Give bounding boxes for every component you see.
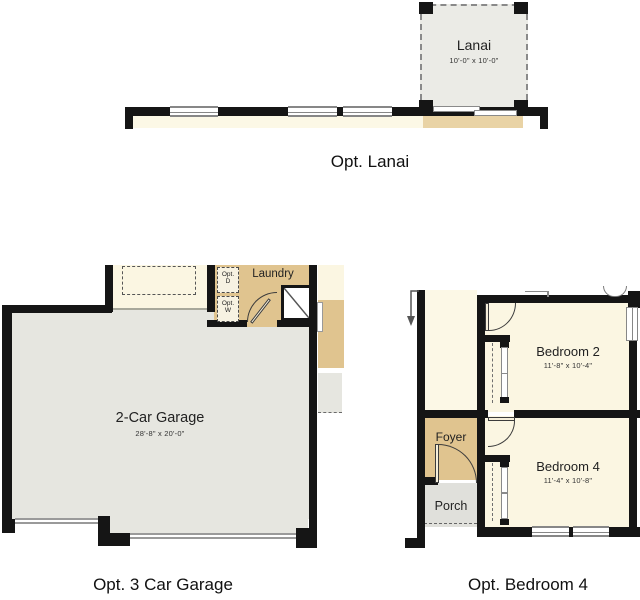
cutoff-hall-strip [318, 265, 344, 300]
window [343, 106, 392, 117]
garage-step-wall-b [98, 533, 130, 546]
closet4-rod-dashed [492, 463, 493, 521]
lanai-room-dims: 10'-0" x 10'-0" [424, 56, 524, 65]
opt-washer-line2: W [225, 307, 231, 314]
rear-wall-left-return [125, 107, 133, 129]
garage-room-dims: 28'-8" x 20'-0" [80, 429, 240, 438]
garage-top-wall [2, 305, 112, 313]
garage-room-label: 2-Car Garage [80, 410, 240, 426]
rear-wall-right-return [540, 107, 548, 129]
garage-bottom-left-stub [2, 519, 15, 533]
closet2-jamb [500, 397, 509, 403]
cutoff-gray-strip [318, 373, 342, 413]
section-title-lanai: Opt. Lanai [250, 152, 490, 172]
window [170, 106, 218, 117]
cutoff-window-mark [525, 291, 549, 295]
garage-left-wall [2, 305, 12, 533]
lanai-post-tl [419, 2, 433, 14]
opt-dryer-line1: Opt. [222, 271, 234, 278]
lanai-post-tr [514, 2, 528, 14]
nook-threshold [112, 308, 209, 310]
bedroom2-side-window [626, 307, 638, 341]
sliding-door-panel [474, 110, 517, 116]
bedroom2-dims: 11'-8" x 10'-4" [500, 361, 636, 370]
opt-washer-box: Opt. W [217, 296, 239, 322]
porch-label: Porch [424, 499, 478, 513]
nook-left-wall [105, 265, 113, 312]
sliding-door-panel [433, 106, 480, 112]
bedroom4-dims: 11'-4" x 10'-8" [500, 476, 636, 485]
opt-dryer-box: Opt. D [217, 267, 239, 293]
closet2-rod-dashed [492, 343, 493, 403]
cutoff-door-jamb [317, 302, 323, 332]
nook-right-wall [207, 265, 215, 312]
foyer-label: Foyer [424, 430, 478, 444]
bed-mid-wall-right [514, 410, 640, 418]
cutoff-window-tick [547, 291, 549, 297]
laundry-label: Laundry [239, 268, 307, 280]
opt-storage-dashed [122, 266, 196, 295]
opt-dryer-line2: D [226, 278, 231, 285]
bedroom4-window [532, 526, 569, 537]
closet2-top-wall [482, 335, 510, 342]
opt-washer-line1: Opt. [222, 300, 234, 307]
closet4-door-panel [501, 493, 508, 519]
bed-left-foot-wall [405, 538, 425, 548]
lanai-room-label: Lanai [424, 37, 524, 53]
water-heater-diagonal [284, 288, 309, 318]
floorplan-canvas: Lanai 10'-0" x 10'-0" Opt. Lanai [0, 0, 640, 600]
bedroom4-window [573, 526, 609, 537]
garage-door-opening [15, 518, 98, 524]
bedroom4-label: Bedroom 4 [500, 459, 636, 474]
garage-bottom-right-corner [296, 528, 317, 548]
bedroom2-label: Bedroom 2 [500, 344, 636, 359]
porch-edge-dashed [424, 523, 477, 524]
water-heater-box [281, 285, 312, 321]
laundry-bottom-wall-right [277, 320, 313, 327]
section-title-bedroom4: Opt. Bedroom 4 [418, 575, 638, 595]
window [288, 106, 337, 117]
closet2-door-panel [501, 373, 508, 398]
direction-arrow [404, 289, 420, 329]
section-title-garage: Opt. 3 Car Garage [53, 575, 273, 595]
hall-closet-wall [477, 295, 485, 537]
hall-floor [424, 290, 477, 418]
closet4-jamb [500, 519, 509, 525]
garage-door-opening [130, 533, 296, 539]
